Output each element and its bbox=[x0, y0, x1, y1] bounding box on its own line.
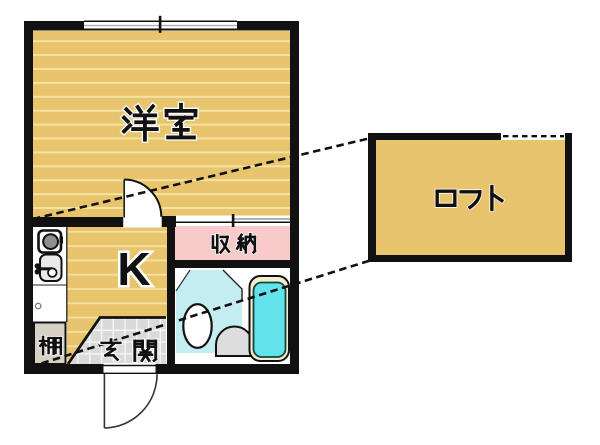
svg-text:K: K bbox=[117, 243, 150, 295]
